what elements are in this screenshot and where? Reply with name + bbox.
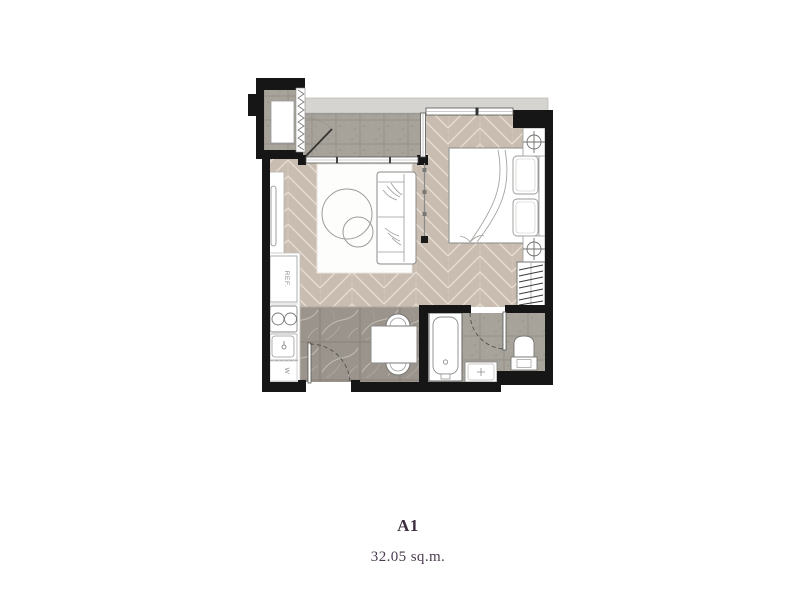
refrigerator-label: REF. bbox=[283, 271, 290, 288]
nightstand-top bbox=[523, 128, 545, 156]
unit-area: 32.05 sq.m. bbox=[371, 549, 445, 565]
washer-label: W bbox=[283, 368, 290, 375]
tv-console bbox=[268, 172, 284, 260]
bathtub bbox=[429, 313, 462, 381]
toilet bbox=[511, 336, 537, 370]
bedroom-window bbox=[426, 108, 513, 116]
sofa bbox=[377, 172, 416, 264]
washer-space: W bbox=[270, 361, 298, 382]
bathroom-sink bbox=[465, 362, 497, 382]
wardrobe bbox=[517, 262, 545, 307]
floor-plan-page: REF. W bbox=[0, 0, 800, 600]
refrigerator: REF. bbox=[270, 256, 297, 302]
ac-unit bbox=[271, 101, 294, 143]
floor-plan-drawing: REF. W bbox=[0, 0, 800, 600]
balcony-sliding-door bbox=[306, 157, 418, 164]
nightstand-bottom bbox=[523, 236, 545, 262]
kitchen-sink bbox=[270, 334, 297, 360]
stove bbox=[270, 306, 297, 332]
corner-window bbox=[421, 113, 426, 157]
unit-title: A1 bbox=[397, 516, 419, 535]
dining-table bbox=[371, 326, 417, 363]
louvre-vent bbox=[296, 88, 305, 152]
bed bbox=[449, 148, 545, 243]
